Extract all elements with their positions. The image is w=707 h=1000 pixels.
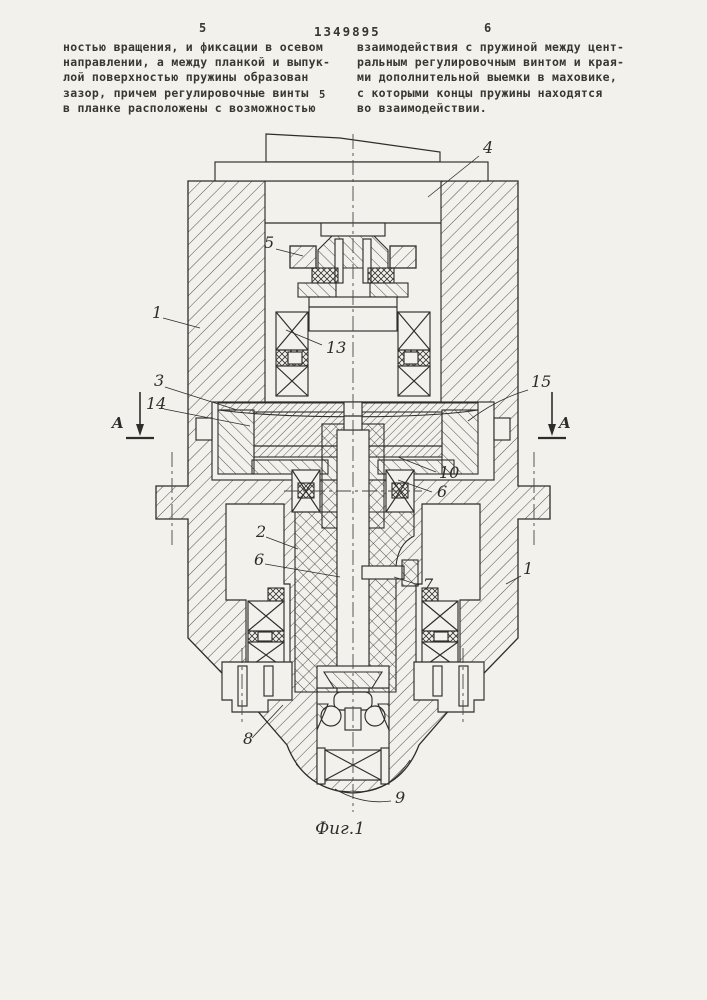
part-label-7: 7 xyxy=(423,575,434,594)
part-label-10: 10 xyxy=(439,463,459,482)
part-label-6-left: 6 xyxy=(254,550,264,569)
part-label-9: 9 xyxy=(395,788,405,807)
part-label-5: 5 xyxy=(264,233,274,252)
part-label-3: 3 xyxy=(154,371,164,390)
part-label-13: 13 xyxy=(326,338,346,357)
patent-page: 5 1349895 6 5 ностью вращения, и фиксаци… xyxy=(0,0,707,1000)
section-letter-left: A xyxy=(110,414,124,432)
part-label-2: 2 xyxy=(255,522,266,541)
part-label-8: 8 xyxy=(243,729,253,748)
part-label-14: 14 xyxy=(146,394,166,413)
part-label-4: 4 xyxy=(482,138,493,157)
upper-bearing-left xyxy=(276,312,308,396)
figure-1-drawing: A A 4 5 1 13 3 14 xyxy=(0,0,707,1000)
upper-bearing-right xyxy=(398,312,430,396)
part-label-15: 15 xyxy=(531,372,551,391)
section-letter-right: A xyxy=(557,414,571,432)
part-label-1-lower: 1 xyxy=(523,559,533,578)
part-label-6-right: 6 xyxy=(437,482,447,501)
part-label-1-upper: 1 xyxy=(152,303,162,322)
section-marker-right: A xyxy=(538,392,571,438)
figure-caption: Фиг.1 xyxy=(315,819,365,839)
